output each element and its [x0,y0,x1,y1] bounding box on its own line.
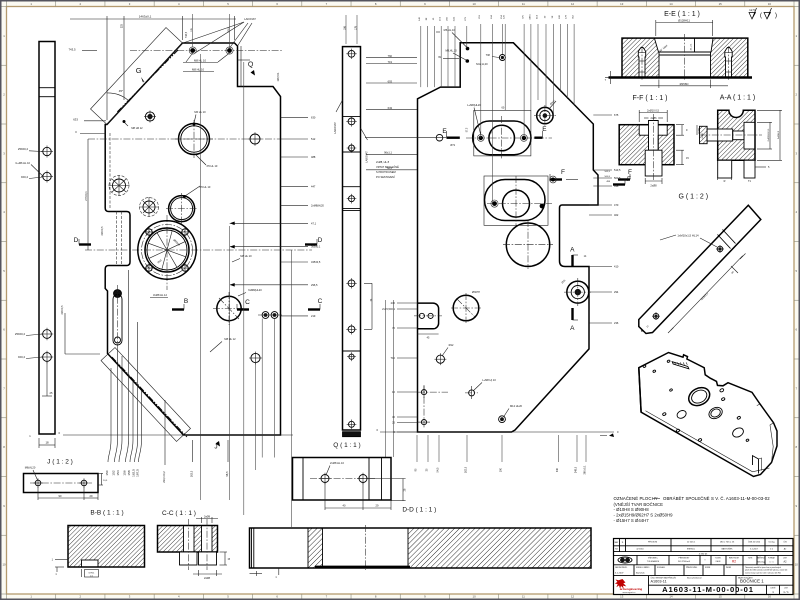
svg-text:447: 447 [311,185,316,189]
svg-text:630: 630 [311,115,316,119]
svg-text:275±0,1: 275±0,1 [84,191,88,201]
svg-text:500,5: 500,5 [614,176,621,180]
svg-text:NORM: NORM [705,567,711,569]
svg-text:2xØ8: 2xØ8 [204,516,211,519]
svg-text:150: 150 [105,470,109,475]
svg-text:J ( 1 : 2 ): J ( 1 : 2 ) [47,459,73,466]
svg-text:340: 340 [556,467,559,472]
svg-text:410: 410 [614,265,619,269]
svg-text:PȆVODNÍ: PȆVODNÍ [648,541,657,544]
svg-text:ISO 2768-mK: ISO 2768-mK [678,561,691,563]
svg-text:6.1.2007: 6.1.2007 [750,549,759,551]
svg-text:M8 HL 12: M8 HL 12 [224,337,236,341]
svg-text:F-F ( 1 : 1 ): F-F ( 1 : 1 ) [633,95,668,102]
svg-text:D: D [318,237,323,244]
svg-text:M8 HL 10: M8 HL 10 [240,254,252,258]
svg-text:- Ø15H7 S Ø44H7: - Ø15H7 S Ø44H7 [614,518,650,523]
svg-text:G+M6 HL 10: G+M6 HL 10 [15,161,30,165]
svg-text:633: 633 [73,117,78,121]
svg-text:M12,H,20: M12,H,20 [476,62,488,66]
svg-text:58,5 kg: 58,5 kg [757,561,765,563]
svg-text:15: 15 [719,2,723,6]
svg-text:Ø156N: Ø156N [680,82,689,86]
svg-text:152: 152 [111,470,115,475]
svg-text:SCHVÁLIL: SCHVÁLIL [657,566,665,569]
svg-text:743,5: 743,5 [185,31,188,38]
svg-text:M12 HL20: M12 HL20 [510,404,523,408]
svg-text:2xØ8: 2xØ8 [702,133,704,139]
svg-text:DATUM PȆEZK.: DATUM PȆEZK. [615,566,628,569]
svg-text:13: 13 [620,2,624,6]
svg-text:ČSN 42 5310: ČSN 42 5310 [748,541,761,544]
svg-text:M8,HL,10: M8,HL,10 [445,49,457,53]
svg-text:TOLER.: TOLER. [715,558,722,560]
svg-text:16: 16 [768,2,772,6]
svg-text:180 x 745 x 25: 180 x 745 x 25 [720,542,735,544]
svg-text:Bartošek: Bartošek [636,572,646,575]
svg-text:P6 HL 10: P6 HL 10 [207,164,218,168]
svg-text:BOČNICE 1: BOČNICE 1 [740,579,764,584]
svg-text:PŘEZKOUŠEL: PŘEZKOUŠEL [686,566,697,569]
svg-text:348,5: 348,5 [529,13,531,19]
svg-text:KRESLIL JMÉNO: KRESLIL JMÉNO [636,566,650,569]
svg-text:9±0,2: 9±0,2 [18,355,25,359]
svg-text:1 / 1: 1 / 1 [783,590,789,594]
svg-text:PO SESTAVENÍ: PO SESTAVENÍ [376,175,395,179]
svg-text:216±0,5: 216±0,5 [101,226,104,236]
svg-text:12: 12 [571,595,575,599]
svg-text:219: 219 [311,314,316,318]
svg-text:LAKOVAT: LAKOVAT [365,151,369,163]
svg-text:T08: T08 [486,54,491,57]
svg-text:A: A [570,247,575,254]
svg-text:470: 470 [614,203,619,207]
svg-text:47,1: 47,1 [311,221,317,225]
svg-text:Ø71: Ø71 [450,144,455,147]
svg-text:693: 693 [388,79,393,83]
svg-text:488: 488 [311,155,316,159]
svg-text:462: 462 [614,213,619,217]
svg-text:236: 236 [614,321,619,325]
svg-text:INDEX: INDEX [726,567,732,569]
svg-text:OBRÁBĚT SPOLEČNĚ S V. Č. A1603: OBRÁBĚT SPOLEČNĚ S V. Č. A1603-11-M-00-0… [663,496,770,501]
svg-text:): ) [775,12,777,19]
svg-text:2xØ6: 2xØ6 [651,117,658,120]
svg-text:C: C [245,299,250,306]
svg-text:14: 14 [669,2,673,6]
svg-text:M8 H6 12: M8 H6 12 [131,126,143,130]
svg-text:B: B [184,298,188,305]
svg-text:norem, hrany srazít 0,3 x 45°,: norem, hrany srazít 0,3 x 45°, tolerance… [745,571,781,574]
svg-text:369±0,1: 369±0,1 [311,245,321,249]
svg-text:C: C [318,298,323,305]
svg-text:760: 760 [388,54,393,58]
svg-text:P6 HL 10: P6 HL 10 [200,185,211,189]
svg-text:259±0,2: 259±0,2 [18,147,29,151]
svg-text:12,5: 12,5 [749,8,755,12]
svg-text:325,5: 325,5 [228,26,230,32]
svg-text:96±1,1: 96±1,1 [384,151,392,155]
svg-text:R2: R2 [732,559,736,563]
svg-text:15: 15 [719,595,723,599]
svg-text:M6,HL,10: M6,HL,10 [444,28,456,32]
svg-text:512: 512 [311,137,316,141]
svg-text:10: 10 [473,2,477,6]
svg-text:T10: T10 [391,356,396,360]
svg-text:6.1.2007: 6.1.2007 [615,573,624,575]
svg-text:Ø12: Ø12 [449,344,454,347]
svg-text:126,5±1: 126,5±1 [277,72,280,82]
svg-text:156: 156 [122,470,126,475]
svg-text:Ø30H7: Ø30H7 [472,291,481,294]
svg-text:A1603-11: A1603-11 [651,580,667,584]
svg-text:513,5: 513,5 [614,168,621,172]
svg-text:10: 10 [473,595,477,599]
svg-text:2xØ10 0,5: 2xØ10 0,5 [647,109,660,113]
svg-text:719: 719 [388,60,393,64]
svg-text:↔: ↔ [704,558,707,562]
svg-text:14: 14 [669,595,673,599]
svg-text:325: 325 [121,23,124,28]
svg-text:A-A ( 1 : 1 ): A-A ( 1 : 1 ) [720,95,755,102]
svg-text:www.agmt.cz: www.agmt.cz [623,591,636,594]
svg-text:294: 294 [614,290,619,294]
svg-text:LAKOVAT: LAKOVAT [333,122,337,134]
svg-text:98,5: 98,5 [225,471,229,477]
svg-text:5,5 kg: 5,5 kg [769,542,776,544]
svg-text:R: R [724,180,726,183]
svg-text:Q ( 1 : 1 ): Q ( 1 : 1 ) [333,442,360,449]
svg-text:11: 11 [522,2,525,6]
svg-text:ÚHLȆ: ÚHLȆ [716,560,722,563]
svg-text:2xØ8, HL 8: 2xØ8, HL 8 [376,160,390,164]
svg-text:11: 11 [622,542,624,544]
svg-text:Q: Q [248,62,254,69]
svg-text:345±0,5: 345±0,5 [311,260,321,264]
svg-text:54,5: 54,5 [437,467,440,472]
svg-text:F: F [627,176,631,183]
svg-text:259±0,2: 259±0,2 [15,332,26,336]
svg-text:10: 10 [795,563,799,567]
svg-text:2xM8 HL 10: 2xM8 HL 10 [330,461,344,465]
svg-text:3xØ44,5: 3xØ44,5 [778,130,780,139]
svg-text:11 523.1: 11 523.1 [687,542,696,544]
svg-text:M8 HL 10: M8 HL 10 [194,59,206,63]
svg-text:162,5: 162,5 [190,470,194,477]
svg-text:B-B ( 1 : 1 ): B-B ( 1 : 1 ) [90,510,123,517]
svg-text:12: 12 [571,2,575,6]
svg-text:Ø128H11: Ø128H11 [678,19,690,23]
svg-text:PȆESNOST: PȆESNOST [679,557,691,560]
svg-text:LAKOVAT: LAKOVAT [244,17,256,21]
svg-text:187,5: 187,5 [135,469,139,477]
svg-text:S PROTIKUSEM: S PROTIKUSEM [376,170,396,174]
svg-text:2x11: 2x11 [453,16,455,21]
svg-text:1463±0,1: 1463±0,1 [139,15,152,19]
svg-text:armengineering: armengineering [620,587,643,591]
svg-text:2xØ8: 2xØ8 [650,184,657,188]
svg-text:Tolerování rozměrȆ a úprav hra: Tolerování rozměrȆ a úprav hran a povrch… [745,566,781,569]
svg-text:2xØ15H9 0,1: 2xØ15H9 0,1 [768,128,770,142]
svg-text:11: 11 [522,595,525,599]
svg-text:503,5: 503,5 [605,171,611,173]
svg-text:L+M8(HL20: L+M8(HL20 [467,103,481,107]
svg-text:C-C ( 1 : 1 ): C-C ( 1 : 1 ) [162,510,196,517]
svg-text:233,1±0,2: 233,1±0,2 [162,471,166,483]
svg-text:E: E [542,126,547,133]
svg-text:A1603-11-M-00-00-01: A1603-11-M-00-00-01 [662,585,754,594]
svg-text:(VNĚJŠÍ TVAR BOČNICE: (VNĚJŠÍ TVAR BOČNICE [614,502,664,507]
svg-text:743,5: 743,5 [69,47,76,51]
svg-text:190: 190 [500,467,503,472]
svg-text:E-E ( 1 : 1 ): E-E ( 1 : 1 ) [664,11,700,18]
svg-text:Název příslušenství: Název příslušenství [687,577,702,580]
svg-text:675: 675 [614,113,619,117]
svg-text:6 H11: 6 H11 [89,572,95,574]
svg-text:9±0,2: 9±0,2 [21,175,28,179]
svg-text:162,5: 162,5 [465,466,468,473]
svg-text:348,5: 348,5 [575,466,578,473]
svg-text:M6(AL20: M6(AL20 [25,466,36,470]
svg-text:F: F [561,169,565,176]
svg-text:- 2xØ15H9/Ø62H7 S 2xØ50H9: - 2xØ15H9/Ø62H7 S 2xØ50H9 [614,513,674,518]
svg-text:M8 HL 10: M8 HL 10 [192,68,204,72]
svg-text:KRESLIL: KRESLIL [687,549,696,551]
svg-text:18: 18 [45,441,49,445]
svg-text:D-D ( 1 : 1 ): D-D ( 1 : 1 ) [402,507,436,514]
svg-text:TOLERANCE: TOLERANCE [647,560,660,563]
svg-text:10: 10 [2,563,6,567]
svg-text:2xØ8: 2xØ8 [204,577,211,580]
svg-text:- Ø10H8 S Ø90H8: - Ø10H8 S Ø90H8 [614,507,650,512]
svg-text:3xM8 HL 12: 3xM8 HL 12 [153,293,167,297]
svg-text:BARTOŠEK: BARTOŠEK [722,548,733,551]
svg-text:OZNAČENÉ PLOCHY: OZNAČENÉ PLOCHY [614,496,658,501]
svg-text:360±0,1: 360±0,1 [584,465,587,475]
svg-text:VŠEOBEC.: VŠEOBEC. [648,557,659,560]
svg-text:216±0,5: 216±0,5 [61,305,64,315]
svg-text:97,5: 97,5 [467,127,469,132]
svg-text:45°: 45° [119,89,124,93]
svg-text:2xM8(H)20: 2xM8(H)20 [311,204,324,208]
svg-text:L+M8 H) 10: L+M8 H) 10 [482,378,496,382]
svg-text:643: 643 [388,106,393,110]
svg-text:296,5: 296,5 [311,283,318,287]
svg-text:13: 13 [620,595,624,599]
svg-text:G ( 1 : 2 ): G ( 1 : 2 ) [679,194,709,201]
svg-text:G: G [136,66,142,75]
svg-text:16: 16 [768,595,772,599]
svg-text:42 5310: 42 5310 [636,549,644,551]
svg-text:ploch dle ČSN, kontrola rozměr: ploch dle ČSN, kontrola rozměrȆ dle výkr… [745,569,787,572]
svg-text:A: A [570,325,575,332]
svg-text:1xM10x1,5 HL14: 1xM10x1,5 HL14 [677,234,699,238]
svg-text:500,5: 500,5 [605,176,611,178]
svg-text:154: 154 [116,470,120,475]
svg-text:6xM8(HL20: 6xM8(HL20 [248,288,262,292]
svg-text:D: D [74,237,79,244]
svg-text:43,-2,1: 43,-2,1 [691,43,693,51]
svg-text:158: 158 [127,470,131,475]
svg-text:230: 230 [391,301,396,305]
